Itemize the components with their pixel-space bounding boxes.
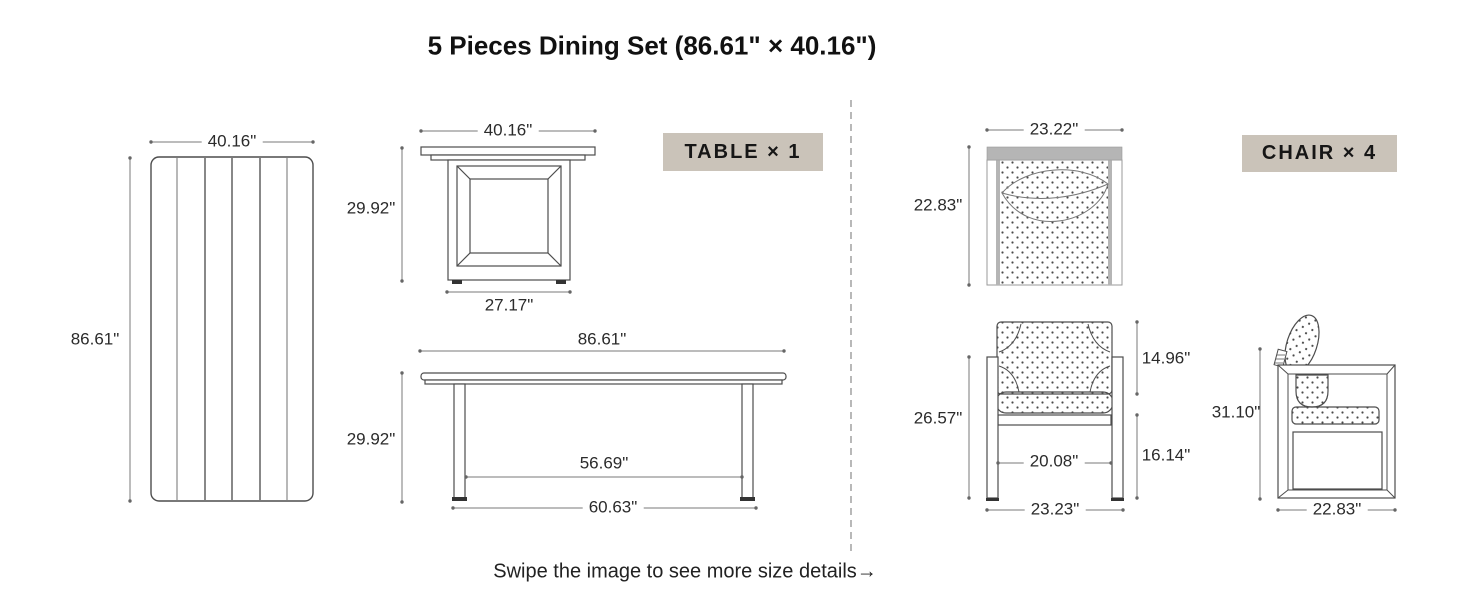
- page-title: 5 Pieces Dining Set (86.61" × 40.16"): [428, 31, 877, 62]
- swipe-hint-text: Swipe the image to see more size details…: [493, 561, 877, 584]
- table-side-view-drawing: [421, 373, 786, 501]
- dim-table-side-height: 29.92": [347, 431, 396, 450]
- dimension-end-dots: [128, 128, 1396, 511]
- dim-chair-top-depth: 22.83": [914, 197, 963, 216]
- dim-table-side-leg-span-outer: 60.63": [583, 499, 644, 518]
- dim-chair-front-overall-width: 23.23": [1025, 501, 1086, 520]
- dim-chair-side-depth: 22.83": [1307, 501, 1368, 520]
- dimension-lines: [130, 130, 1395, 510]
- dim-table-end-base-width: 27.17": [485, 297, 534, 316]
- table-end-view-drawing: [421, 147, 595, 284]
- dim-table-top-length: 86.61": [71, 331, 120, 350]
- dim-table-top-width: 40.16": [202, 133, 263, 152]
- table-count-badge: TABLE × 1: [663, 133, 823, 171]
- dim-table-end-top-width: 40.16": [478, 122, 539, 141]
- chair-count-badge: CHAIR × 4: [1242, 135, 1397, 172]
- dim-chair-top-width: 23.22": [1024, 121, 1085, 140]
- dim-chair-front-back-cushion-height: 14.96": [1142, 350, 1191, 369]
- dim-table-end-height: 29.92": [347, 200, 396, 219]
- dim-table-side-leg-span-inner: 56.69": [580, 455, 629, 474]
- dim-chair-front-arm-height: 26.57": [914, 410, 963, 429]
- chair-front-view-drawing: [986, 322, 1124, 501]
- dim-chair-front-inner-width: 20.08": [1024, 453, 1085, 472]
- dim-chair-side-overall-height: 31.10": [1212, 404, 1261, 423]
- diagram-line-art: [0, 0, 1464, 600]
- chair-side-view-drawing: [1274, 311, 1395, 498]
- dim-chair-front-seat-frame-height: 16.14": [1142, 447, 1191, 466]
- dim-table-side-length: 86.61": [578, 331, 627, 350]
- dining-set-dimension-diagram: 5 Pieces Dining Set (86.61" × 40.16") TA…: [0, 0, 1464, 600]
- chair-top-view-drawing: [987, 147, 1122, 285]
- table-top-view-drawing: [151, 157, 313, 501]
